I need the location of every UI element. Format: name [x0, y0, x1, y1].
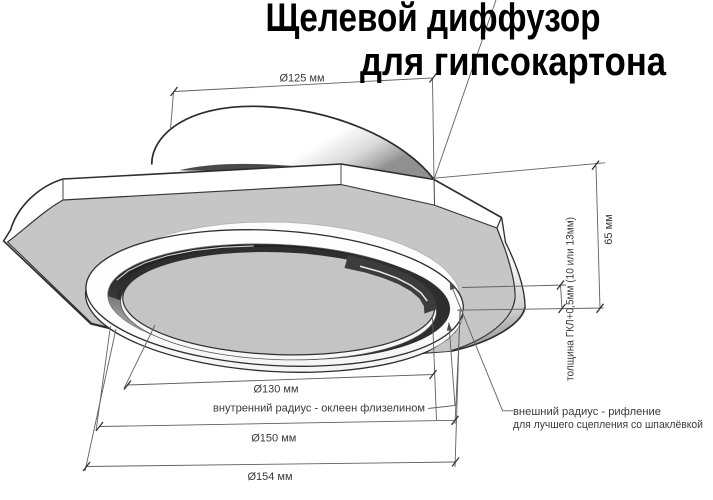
- svg-text:Ø150 мм: Ø150 мм: [251, 432, 296, 444]
- svg-text:Ø130 мм: Ø130 мм: [253, 383, 298, 395]
- svg-text:65 мм: 65 мм: [603, 214, 615, 244]
- svg-text:для гипсокартона: для гипсокартона: [360, 40, 667, 84]
- svg-text:для лучшего сцепления со шпакл: для лучшего сцепления со шпаклёвкой: [513, 419, 703, 431]
- svg-text:Щелевой диффузор: Щелевой диффузор: [266, 0, 601, 40]
- svg-text:внутренний радиус - оклеен фли: внутренний радиус - оклеен флизелином: [213, 403, 425, 415]
- svg-text:Ø125 мм: Ø125 мм: [279, 72, 324, 84]
- svg-text:толщина ГКЛ+0,5мм (10 или 13мм: толщина ГКЛ+0,5мм (10 или 13мм): [565, 217, 577, 381]
- svg-text:Ø154 мм: Ø154 мм: [247, 471, 292, 483]
- svg-text:внешний радиус - рифление: внешний радиус - рифление: [513, 406, 661, 418]
